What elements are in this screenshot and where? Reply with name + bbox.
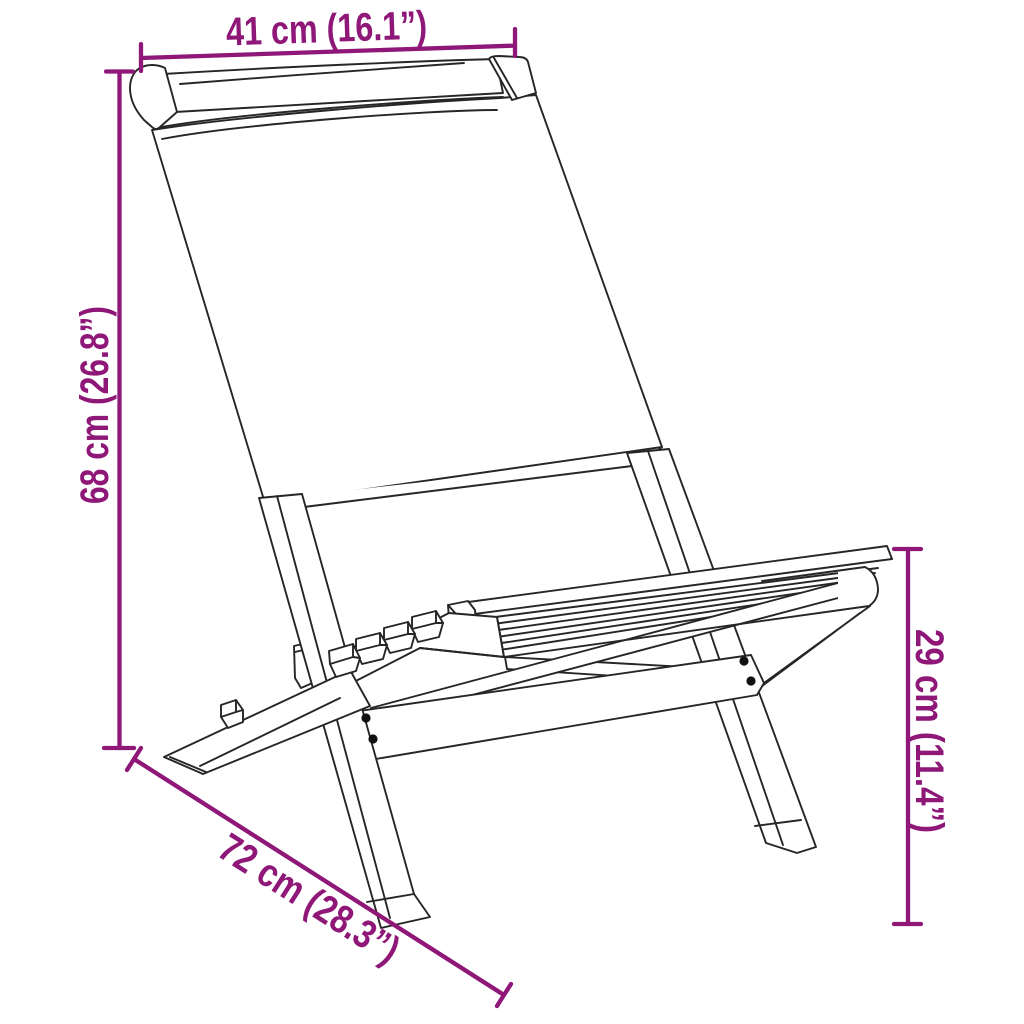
svg-text:29 cm (11.4”): 29 cm (11.4”) xyxy=(907,629,951,833)
svg-text:68 cm (26.8”): 68 cm (26.8”) xyxy=(73,306,117,504)
svg-text:41 cm (16.1”): 41 cm (16.1”) xyxy=(225,4,427,55)
